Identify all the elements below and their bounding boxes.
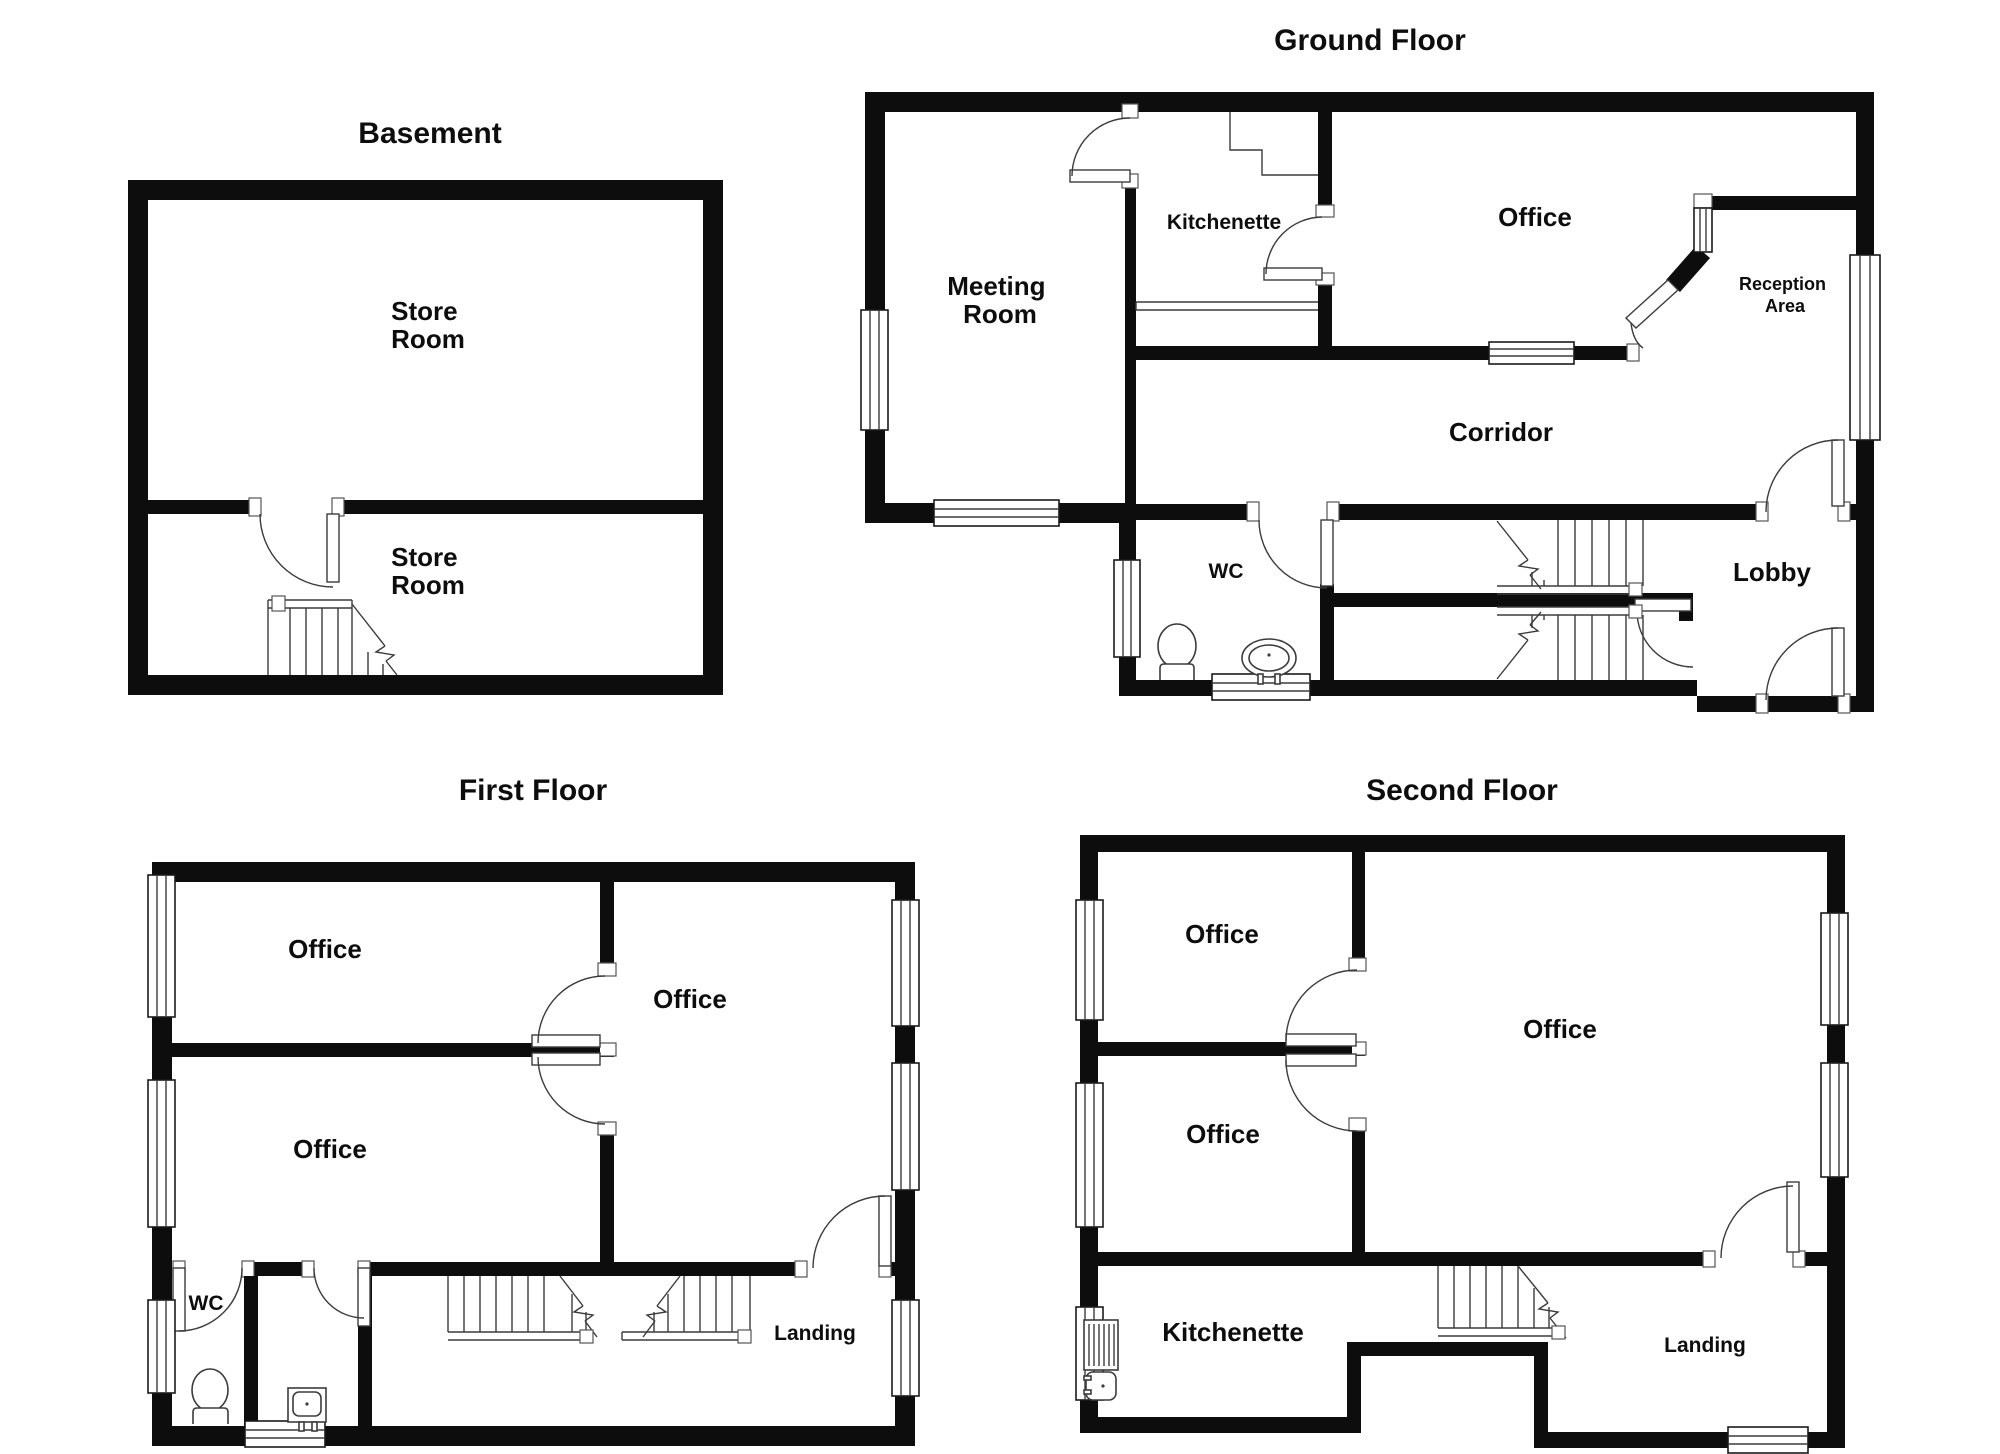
- basement-door: [260, 514, 339, 587]
- store-room-lower-label: Store Room: [391, 542, 465, 600]
- landing-bottom-window: [1728, 1427, 1808, 1453]
- second-floor-windows: [1076, 900, 1848, 1453]
- wc-label: WC: [189, 1292, 224, 1315]
- floor-plan-sheet: Basement Store Room: [0, 0, 2000, 1454]
- office-top-left-label: Office: [1185, 919, 1259, 949]
- second-floor-plan: Second Floor: [1076, 774, 1848, 1453]
- left-window-2: [148, 1080, 175, 1227]
- basement-plan: Basement Store Room: [128, 117, 723, 695]
- lobby-label: Lobby: [1733, 557, 1812, 587]
- right-window-3: [892, 1300, 919, 1396]
- office-top-left-label: Office: [288, 934, 362, 964]
- second-floor-staircase: [1438, 1266, 1566, 1339]
- kitchenette-label: Kitchenette: [1167, 211, 1281, 234]
- office-bottom-left-label: Office: [1186, 1119, 1260, 1149]
- corridor-label: Corridor: [1449, 417, 1553, 447]
- landing-label: Landing: [1664, 1334, 1746, 1357]
- reception-area-label: Reception Area: [1739, 274, 1831, 316]
- left-window-1: [1076, 900, 1103, 1020]
- right-window-2: [1821, 1063, 1848, 1177]
- second-floor-title: Second Floor: [1366, 774, 1558, 807]
- second-floor-interior-walls: [1098, 852, 1827, 1267]
- landing-label: Landing: [774, 1322, 856, 1345]
- wc-label: WC: [1209, 560, 1244, 583]
- office-bottom-left-label: Office: [293, 1134, 367, 1164]
- right-window-1: [1821, 913, 1848, 1025]
- basement-room-labels: Store Room Store Room: [391, 296, 465, 600]
- wc-left-window: [1114, 560, 1140, 657]
- ground-floor-title: Ground Floor: [1274, 24, 1466, 57]
- meeting-room-left-window: [861, 310, 888, 430]
- toilet-fixture: [192, 1369, 228, 1424]
- first-floor-doors: [173, 976, 891, 1331]
- floor-plan-drawing: Basement Store Room: [0, 0, 2000, 1454]
- office-interior-window: [1489, 342, 1574, 364]
- basement-staircase: [268, 596, 397, 675]
- meeting-room-bottom-window: [934, 500, 1059, 526]
- first-floor-room-labels: Office Office Office WC Landing: [189, 934, 856, 1345]
- left-window-1: [148, 875, 175, 1017]
- first-floor-windows: [148, 875, 919, 1447]
- basement-exterior-walls: [128, 180, 723, 695]
- office-large-label: Office: [1523, 1014, 1597, 1044]
- right-window-2: [892, 1063, 919, 1190]
- meeting-room-label: Meeting Room: [947, 271, 1052, 329]
- ground-floor-interior-walls: [1122, 104, 1856, 713]
- first-floor-staircases: [448, 1276, 751, 1343]
- right-window-1: [892, 900, 919, 1026]
- first-floor-plan: First Floor: [148, 774, 919, 1447]
- reception-left-window: [1694, 208, 1712, 252]
- store-room-upper-label: Store Room: [391, 296, 465, 354]
- office-large-label: Office: [653, 984, 727, 1014]
- basement-title: Basement: [358, 117, 501, 150]
- ground-floor-exterior-walls: [865, 92, 1874, 712]
- first-floor-exterior-walls: [152, 862, 915, 1446]
- left-window-3: [148, 1300, 175, 1393]
- left-window-2: [1076, 1083, 1103, 1227]
- kitchenette-label: Kitchenette: [1162, 1317, 1304, 1347]
- kitchen-sink-fixture: [1084, 1320, 1118, 1400]
- office-label: Office: [1498, 202, 1572, 232]
- reception-right-window: [1850, 255, 1880, 440]
- ground-floor-plan: Ground Floor: [861, 24, 1880, 713]
- second-floor-fixtures: [1084, 1320, 1118, 1400]
- first-floor-title: First Floor: [459, 774, 608, 807]
- basement-divider-wall: [148, 498, 703, 516]
- toilet-fixture: [1158, 624, 1196, 680]
